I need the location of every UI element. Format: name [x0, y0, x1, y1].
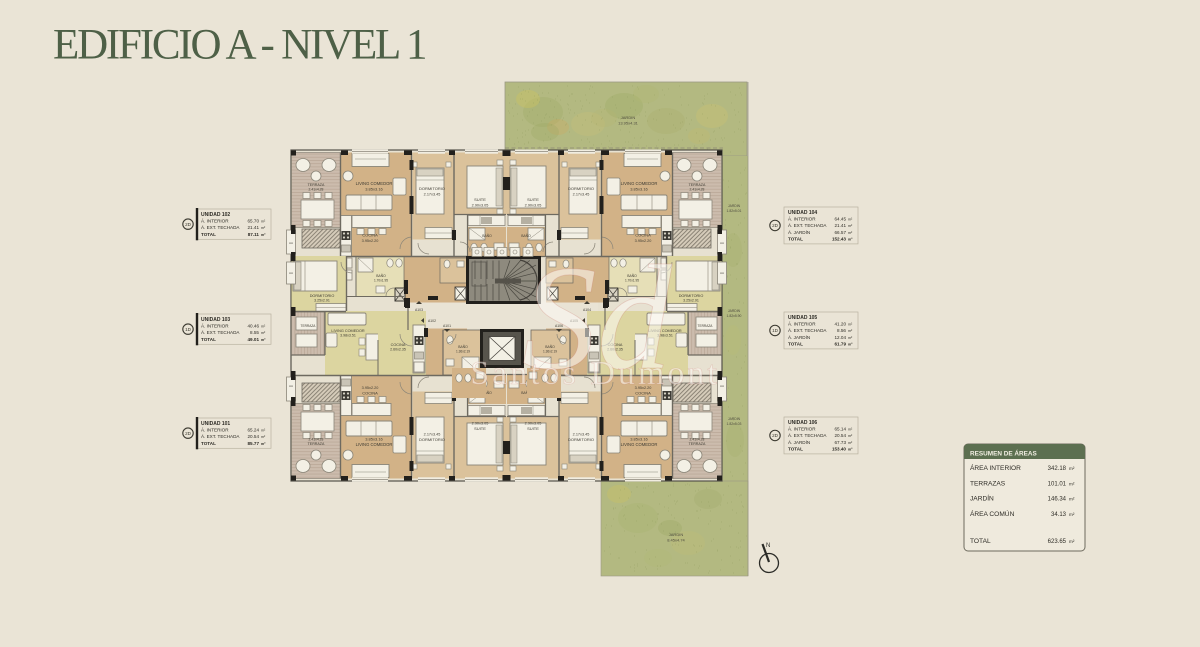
svg-text:65.14: 65.14	[835, 427, 847, 432]
svg-text:UNIDAD 103: UNIDAD 103	[201, 317, 230, 323]
svg-text:Á. INTERIOR: Á. INTERIOR	[788, 426, 816, 432]
svg-text:Á. JARDÍN: Á. JARDÍN	[788, 229, 810, 235]
svg-text:623.65: 623.65	[1048, 539, 1067, 545]
svg-text:146.34: 146.34	[1048, 497, 1067, 503]
svg-text:Á. INTERIOR: Á. INTERIOR	[201, 323, 229, 329]
svg-text:UNIDAD 104: UNIDAD 104	[788, 210, 817, 216]
svg-text:DORMITORIO: DORMITORIO	[419, 186, 445, 191]
svg-text:DORMITORIO: DORMITORIO	[679, 294, 704, 298]
svg-text:m²: m²	[1069, 539, 1075, 544]
svg-text:AA: AA	[289, 384, 293, 388]
svg-text:2.41x4.28: 2.41x4.28	[690, 188, 705, 192]
svg-text:UNIDAD 101: UNIDAD 101	[201, 421, 230, 427]
svg-text:LIVING COMEDOR: LIVING COMEDOR	[621, 442, 658, 447]
svg-text:TERRAZA: TERRAZA	[698, 324, 714, 328]
svg-text:12.04: 12.04	[835, 335, 847, 340]
svg-text:SUITE: SUITE	[527, 426, 539, 431]
svg-text:2.17x3.45: 2.17x3.45	[573, 433, 590, 437]
svg-text:m²: m²	[1069, 497, 1075, 502]
svg-text:13.95x4.31: 13.95x4.31	[618, 121, 639, 126]
svg-text:TERRAZA: TERRAZA	[689, 442, 706, 446]
svg-text:1.36x2.19: 1.36x2.19	[456, 350, 470, 354]
svg-text:152.43: 152.43	[832, 236, 846, 241]
svg-text:2.41x4.28: 2.41x4.28	[309, 188, 324, 192]
svg-text:1.82x5.01: 1.82x5.01	[727, 209, 742, 213]
svg-text:m²: m²	[1069, 482, 1075, 487]
svg-text:TERRAZA: TERRAZA	[308, 442, 325, 446]
svg-text:SUITE: SUITE	[474, 426, 486, 431]
svg-text:SUITE: SUITE	[474, 197, 486, 202]
svg-text:A101: A101	[443, 324, 451, 328]
svg-text:8.45x4.74: 8.45x4.74	[667, 538, 685, 543]
svg-text:1.82x5.03: 1.82x5.03	[727, 422, 742, 426]
svg-text:65.24: 65.24	[248, 428, 260, 433]
svg-text:2.90x3.05: 2.90x3.05	[472, 422, 489, 426]
svg-text:TERRAZAS: TERRAZAS	[970, 481, 1006, 488]
svg-text:COCINA: COCINA	[362, 233, 378, 238]
svg-text:2.41x4.28: 2.41x4.28	[690, 438, 705, 442]
svg-text:JARDÍN: JARDÍN	[970, 494, 994, 503]
svg-text:153.40: 153.40	[832, 446, 846, 451]
svg-text:m²: m²	[1069, 512, 1075, 517]
svg-text:JARDIN: JARDIN	[728, 204, 741, 208]
svg-text:Á. EXT. TECHADA: Á. EXT. TECHADA	[201, 329, 240, 335]
svg-text:RESUMEN DE ÁREAS: RESUMEN DE ÁREAS	[970, 449, 1037, 458]
svg-text:Á. EXT. TECHADA: Á. EXT. TECHADA	[788, 222, 827, 228]
svg-text:DORMITORIO: DORMITORIO	[419, 437, 445, 442]
svg-text:2.90x3.05: 2.90x3.05	[525, 204, 542, 208]
svg-text:8.56: 8.56	[837, 328, 846, 333]
svg-text:2.41x4.28: 2.41x4.28	[309, 438, 324, 442]
svg-text:Santos Dumont: Santos Dumont	[470, 355, 720, 392]
svg-text:40.46: 40.46	[248, 324, 260, 329]
svg-text:20.54: 20.54	[835, 433, 847, 438]
svg-text:3.95x2.20: 3.95x2.20	[362, 239, 379, 243]
svg-text:Á. INTERIOR: Á. INTERIOR	[201, 427, 229, 433]
svg-text:AA: AA	[720, 271, 724, 275]
svg-text:2D: 2D	[772, 223, 779, 228]
svg-text:Á. INTERIOR: Á. INTERIOR	[201, 218, 229, 224]
svg-text:21.41: 21.41	[835, 223, 847, 228]
svg-text:JARDIN: JARDIN	[669, 532, 684, 537]
svg-text:UNIDAD 105: UNIDAD 105	[788, 315, 817, 321]
svg-text:34.13: 34.13	[1051, 512, 1067, 518]
svg-text:TOTAL: TOTAL	[201, 232, 216, 237]
svg-text:2.17x3.45: 2.17x3.45	[573, 193, 590, 197]
svg-text:TOTAL: TOTAL	[788, 341, 803, 346]
svg-text:64.45: 64.45	[835, 217, 847, 222]
svg-text:Á. INTERIOR: Á. INTERIOR	[788, 321, 816, 327]
svg-text:EDIFICIO A - NIVEL 1: EDIFICIO A - NIVEL 1	[53, 22, 429, 69]
svg-text:1.70x1.95: 1.70x1.95	[374, 279, 388, 283]
svg-text:Á. JARDÍN: Á. JARDÍN	[788, 439, 810, 445]
svg-text:2D: 2D	[185, 431, 192, 436]
svg-text:1D: 1D	[772, 328, 779, 333]
svg-text:67.73: 67.73	[835, 440, 847, 445]
svg-text:TERRAZA: TERRAZA	[689, 183, 706, 187]
svg-text:2D: 2D	[772, 433, 779, 438]
svg-text:A103: A103	[415, 308, 423, 312]
svg-text:41.20: 41.20	[835, 322, 847, 327]
svg-text:m²: m²	[1069, 466, 1075, 471]
svg-text:8.55: 8.55	[250, 330, 259, 335]
svg-text:Á. INTERIOR: Á. INTERIOR	[788, 216, 816, 222]
svg-text:87.11: 87.11	[248, 232, 260, 237]
svg-text:Á. JARDÍN: Á. JARDÍN	[788, 334, 810, 340]
svg-text:N: N	[766, 543, 770, 549]
svg-text:49.01: 49.01	[248, 337, 260, 342]
svg-text:AA: AA	[720, 384, 724, 388]
svg-text:342.18: 342.18	[1048, 466, 1067, 472]
svg-text:UNIDAD 102: UNIDAD 102	[201, 212, 230, 218]
svg-text:1D: 1D	[185, 327, 192, 332]
svg-text:101.01: 101.01	[1048, 482, 1067, 488]
svg-text:3.85x3.16: 3.85x3.16	[365, 437, 383, 442]
svg-text:LIVING COMEDOR: LIVING COMEDOR	[331, 329, 365, 333]
svg-text:66.57: 66.57	[835, 230, 847, 235]
svg-text:BAÑO: BAÑO	[482, 233, 492, 238]
svg-text:85.77: 85.77	[248, 441, 260, 446]
svg-text:TOTAL: TOTAL	[788, 236, 803, 241]
svg-text:TERRAZA: TERRAZA	[301, 324, 317, 328]
svg-text:Á. EXT. TECHADA: Á. EXT. TECHADA	[788, 327, 827, 333]
svg-text:AA: AA	[720, 241, 724, 245]
svg-text:SUITE: SUITE	[527, 197, 539, 202]
svg-text:BAÑO: BAÑO	[458, 344, 468, 349]
svg-text:3.85x3.16: 3.85x3.16	[630, 187, 648, 192]
svg-text:UNIDAD 106: UNIDAD 106	[788, 420, 817, 426]
svg-text:3.85x3.16: 3.85x3.16	[365, 187, 383, 192]
svg-text:3.25x2.91: 3.25x2.91	[683, 299, 699, 303]
svg-text:AA: AA	[289, 241, 293, 245]
svg-text:2.90x3.05: 2.90x3.05	[472, 204, 489, 208]
svg-text:20.54: 20.54	[248, 434, 260, 439]
svg-text:LIVING COMEDOR: LIVING COMEDOR	[356, 181, 393, 186]
svg-text:2.17x3.45: 2.17x3.45	[424, 193, 441, 197]
svg-text:61.79: 61.79	[835, 341, 847, 346]
svg-text:TOTAL: TOTAL	[970, 538, 991, 545]
svg-text:2.60x2.35: 2.60x2.35	[390, 348, 406, 352]
svg-text:COCINA: COCINA	[391, 343, 406, 347]
svg-text:ÁREA COMÚN: ÁREA COMÚN	[970, 509, 1015, 518]
svg-text:Á. EXT. TECHADA: Á. EXT. TECHADA	[201, 224, 240, 230]
svg-text:Á. EXT. TECHADA: Á. EXT. TECHADA	[201, 433, 240, 439]
svg-text:DORMITORIO: DORMITORIO	[310, 294, 335, 298]
svg-text:BAÑO: BAÑO	[376, 273, 386, 278]
svg-text:JARDIN: JARDIN	[621, 115, 636, 120]
svg-text:TERRAZA: TERRAZA	[308, 183, 325, 187]
svg-text:COCINA: COCINA	[362, 391, 378, 396]
svg-text:TOTAL: TOTAL	[201, 441, 216, 446]
svg-text:JARDIN: JARDIN	[728, 309, 741, 313]
svg-text:3.25x2.91: 3.25x2.91	[314, 299, 330, 303]
svg-text:TOTAL: TOTAL	[201, 337, 216, 342]
svg-text:LIVING COMEDOR: LIVING COMEDOR	[356, 442, 393, 447]
svg-text:2.90x3.05: 2.90x3.05	[525, 422, 542, 426]
svg-text:A102: A102	[428, 319, 436, 323]
svg-text:DORMITORIO: DORMITORIO	[568, 186, 594, 191]
svg-text:1.82x5.90: 1.82x5.90	[727, 314, 742, 318]
svg-text:65.70: 65.70	[248, 219, 260, 224]
svg-text:ÁREA INTERIOR: ÁREA INTERIOR	[970, 463, 1021, 472]
svg-text:3.98x3.51: 3.98x3.51	[340, 334, 356, 338]
svg-text:Á. EXT. TECHADA: Á. EXT. TECHADA	[788, 432, 827, 438]
svg-text:JARDIN: JARDIN	[728, 417, 741, 421]
svg-text:AA: AA	[289, 271, 293, 275]
svg-text:LIVING COMEDOR: LIVING COMEDOR	[621, 181, 658, 186]
svg-text:21.41: 21.41	[248, 225, 260, 230]
svg-text:TOTAL: TOTAL	[788, 446, 803, 451]
svg-text:3.85x3.16: 3.85x3.16	[630, 437, 648, 442]
svg-text:DORMITORIO: DORMITORIO	[568, 437, 594, 442]
svg-text:2D: 2D	[185, 222, 192, 227]
svg-text:2.17x3.45: 2.17x3.45	[424, 433, 441, 437]
svg-text:3.95x2.20: 3.95x2.20	[362, 386, 379, 390]
